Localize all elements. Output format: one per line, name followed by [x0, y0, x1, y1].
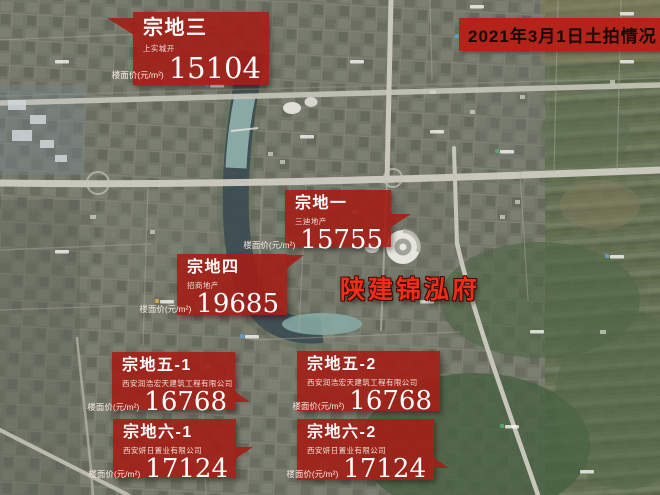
parcel-box-four: 宗地四 招商地产 楼面价(元/m²) 19685	[177, 254, 287, 315]
parcel-box-three: 宗地三 上实城开 楼面价(元/m²) 15104	[133, 12, 269, 85]
floor-price-value: 17124	[145, 456, 228, 482]
parcel-box-five-1: 宗地五-1 西安润浩宏天建筑工程有限公司 楼面价(元/m²) 16768	[112, 352, 235, 410]
floor-price-label: 楼面价(元/m²)	[87, 401, 139, 413]
floor-price-label: 楼面价(元/m²)	[243, 239, 295, 251]
parcel-box-six-2: 宗地六-2 西安妍日置业有限公司 楼面价(元/m²) 17124	[297, 419, 434, 480]
land-auction-map: 2021年3月1日土拍情况 陕建锦泓府 宗地三 上实城开 楼面价(元/m²) 1…	[0, 0, 660, 495]
parcel-box-one: 宗地一 三迪地产 楼面价(元/m²) 15755	[285, 190, 391, 247]
parcel-box-six-1: 宗地六-1 西安妍日置业有限公司 楼面价(元/m²) 17124	[113, 419, 236, 478]
parcel-name: 宗地六-2	[307, 424, 426, 442]
parcel-name: 宗地五-1	[122, 357, 227, 375]
floor-price-value: 19685	[196, 291, 279, 317]
floor-price-label: 楼面价(元/m²)	[286, 468, 338, 480]
floor-price-value: 17124	[343, 456, 426, 482]
floor-price-value: 15755	[300, 227, 383, 253]
pointer-arrow	[234, 391, 250, 402]
parcel-name: 宗地一	[295, 195, 383, 213]
pointer-arrow	[434, 458, 449, 468]
parcel-name: 宗地三	[143, 17, 261, 40]
parcel-name: 宗地六-1	[123, 424, 228, 442]
auction-date-title: 2021年3月1日土拍情况	[459, 18, 660, 51]
floor-price-label: 楼面价(元/m²)	[88, 468, 140, 480]
parcel-box-five-2: 宗地五-2 西安润浩宏天建筑工程有限公司 楼面价(元/m²) 16768	[297, 351, 440, 411]
floor-price-label: 楼面价(元/m²)	[112, 69, 164, 81]
floor-price-value: 16768	[144, 389, 227, 415]
floor-price-label: 楼面价(元/m²)	[292, 400, 344, 412]
pointer-arrow	[107, 18, 134, 35]
parcel-name: 宗地四	[187, 259, 279, 277]
pointer-arrow	[235, 447, 253, 459]
project-watermark: 陕建锦泓府	[340, 270, 480, 306]
floor-price-value: 16768	[349, 388, 432, 414]
pointer-arrow	[286, 255, 304, 269]
parcel-name: 宗地五-2	[307, 356, 432, 374]
floor-price-label: 楼面价(元/m²)	[139, 303, 191, 315]
pointer-arrow	[391, 214, 411, 227]
floor-price-value: 15104	[169, 54, 261, 83]
